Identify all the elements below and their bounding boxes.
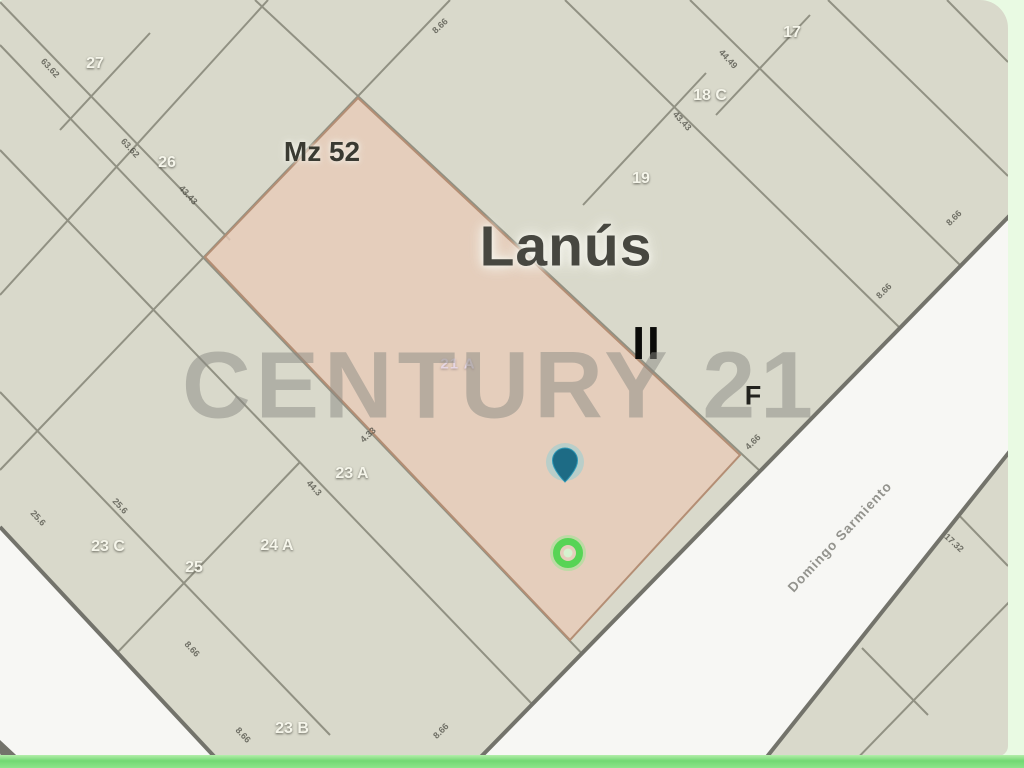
cadastral-map-image: 63.6263.6243.438.6644.34.3344.4943.438.6… <box>0 0 1008 756</box>
green-marker-center <box>564 549 573 558</box>
parcel-number-label: 27 <box>86 55 104 72</box>
parcel-boundary-line <box>565 0 900 328</box>
parcel-boundary-line <box>0 2 230 240</box>
parcel-boundary-line <box>952 508 1008 566</box>
parcel-number-label: 19 <box>632 170 650 187</box>
dimension-label: 17.32 <box>942 531 965 554</box>
dimension-label: 25.6 <box>111 496 130 516</box>
dimension-label: 8.66 <box>944 208 963 227</box>
parcel-number-label: 17 <box>783 24 801 41</box>
bottom-green-bar <box>0 755 1024 768</box>
parcel-number-label: 18 C <box>693 87 727 104</box>
parcel-boundary-line <box>690 0 961 266</box>
century21-watermark: CENTURY 21 <box>182 339 818 434</box>
block-label: Mz 52 <box>284 138 360 166</box>
dimension-label: 25.6 <box>29 508 48 528</box>
dimension-label: 63.62 <box>119 136 142 159</box>
parcel-number-label: 25 <box>185 559 203 576</box>
parcel-number-label: 23 C <box>91 538 125 555</box>
dimension-label: 43.43 <box>671 109 694 132</box>
dimension-label: 44.49 <box>717 47 740 70</box>
dimension-label: 43.43 <box>177 183 200 206</box>
parcel-boundary-line <box>115 462 300 655</box>
dimension-label: 8.66 <box>234 725 253 745</box>
parcel-number-label: 26 <box>158 154 176 171</box>
parcel-number-label: 24 A <box>260 537 294 554</box>
city-label: Lanús <box>480 219 653 276</box>
parcel-number-label: 23 A <box>335 465 369 482</box>
parcel-boundary-line <box>862 648 928 715</box>
dimension-label: 63.62 <box>39 56 62 79</box>
parcel-boundary-line <box>60 33 150 130</box>
dimension-label: 8.66 <box>183 639 202 659</box>
dimension-label: 44.3 <box>305 478 324 498</box>
parcel-boundary-line <box>828 0 1008 176</box>
parcel-number-label: 23 B <box>275 720 309 737</box>
screenshot-root: { "map": { "block_label": "Mz 52", "city… <box>0 0 1024 768</box>
dimension-label: 8.66 <box>874 281 893 300</box>
parcel-boundary-line <box>947 0 1008 62</box>
dimension-label: 8.66 <box>431 721 450 740</box>
